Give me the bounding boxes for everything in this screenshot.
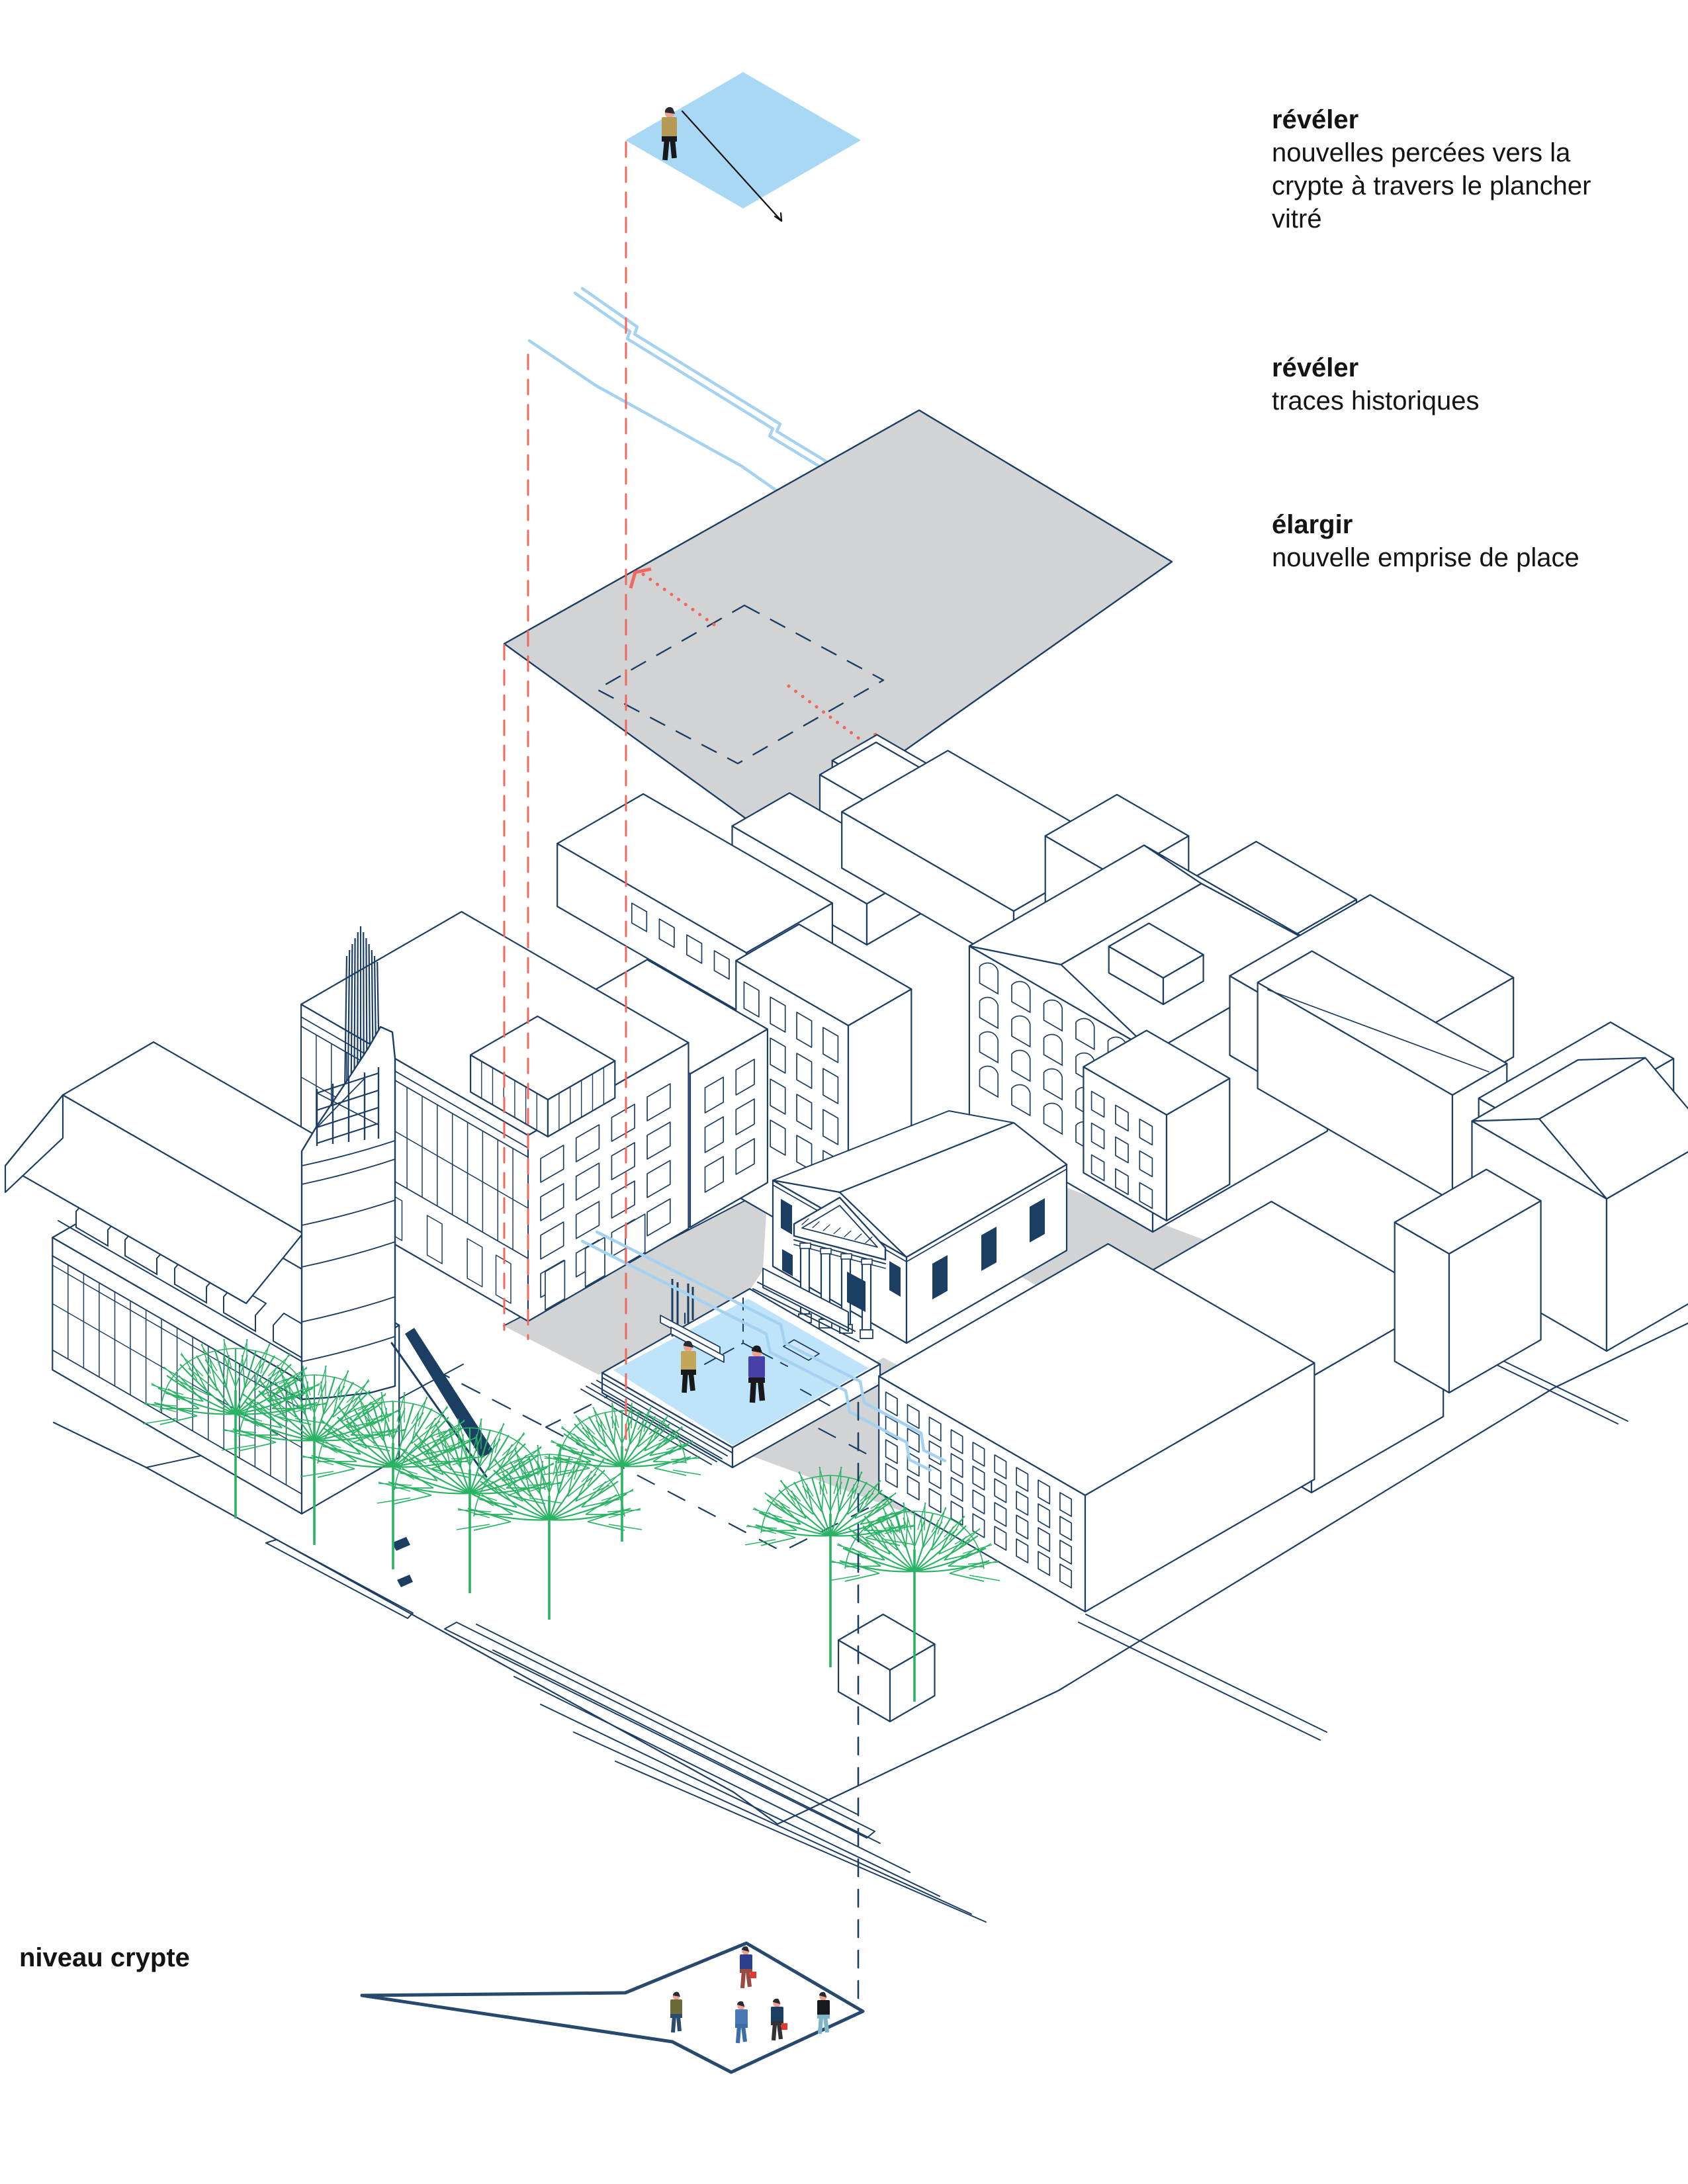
svg-text:nouvelles percées vers la: nouvelles percées vers la <box>1272 138 1571 167</box>
svg-text:vitré: vitré <box>1272 204 1322 234</box>
svg-text:crypte à travers le plancher: crypte à travers le plancher <box>1272 171 1591 200</box>
svg-text:élargir: élargir <box>1272 510 1353 539</box>
svg-text:niveau crypte: niveau crypte <box>19 1943 190 1972</box>
svg-text:révéler: révéler <box>1272 353 1358 382</box>
svg-text:révéler: révéler <box>1272 105 1358 134</box>
svg-text:nouvelle emprise de place: nouvelle emprise de place <box>1272 543 1579 572</box>
svg-text:traces historiques: traces historiques <box>1272 386 1479 415</box>
